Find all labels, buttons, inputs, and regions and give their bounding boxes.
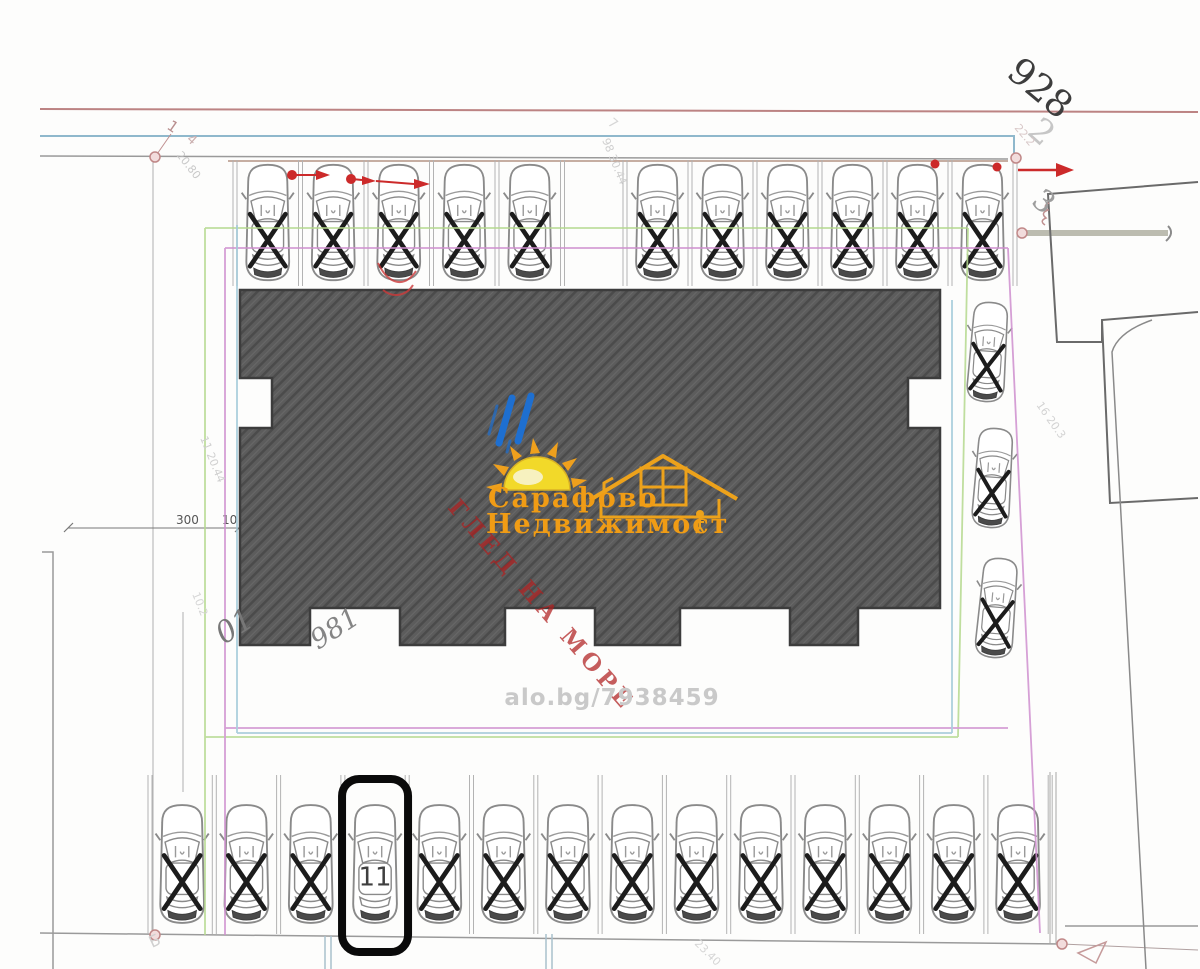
parking-row-right-column [962,301,1023,659]
parking-row-top-right [623,160,1017,286]
parking-spot-top_right-6 [956,165,1008,280]
brand-line2: Недвижимост [486,509,729,540]
parking-spot-bottom-7 [541,805,594,923]
neighbor-buildings [1042,182,1198,969]
parking-spot-right_column-3 [970,557,1023,660]
parking-spot-top_right-1 [631,165,683,280]
parking-spot-top_left-4 [438,165,490,280]
parking-spot-top_right-4 [826,165,878,280]
parking-spot-top_left-1 [242,165,294,280]
plot-number-928: 928 [999,49,1081,127]
parking-row-top-left [233,160,565,286]
parking-spot-top_right-5 [891,165,943,280]
dim-2080: 20.80 [174,149,204,182]
parking-row-bottom: 11 [148,775,1052,952]
dim-2340: 23.40 [692,937,723,968]
parking-spot-bottom-5 [413,805,466,923]
label-981: 981 [305,602,365,656]
listing-ref: alo.bg/7938459 [504,685,719,711]
parking-spot-bottom-12 [863,805,916,923]
mark-7: 7 [604,116,620,133]
arrow-right-icon [1056,163,1074,177]
main-building [240,290,940,645]
arrow-right-icon [414,179,430,189]
parking-spot-top_left-5 [504,165,556,280]
parking-spot-right_column-1 [962,301,1014,403]
arrow-right-icon [362,176,376,185]
leader-1: 1 [164,117,182,137]
parking-spot-right_column-2 [967,427,1019,529]
selected-spot-number: 11 [359,862,392,892]
label-b: Б [146,930,164,952]
dim-11-2044: 11 20.44 [197,434,227,484]
parking-spot-bottom-8 [606,805,659,923]
parking-spot-bottom-2 [220,805,273,923]
parking-spot-bottom-6 [477,805,530,923]
parking-spot-bottom-9 [670,805,723,923]
road-edge [1112,320,1152,969]
site-plan-canvas: 300 10 11 Сарафово [0,0,1200,969]
dim-102: 10.2 [189,590,210,618]
parking-spot-bottom-3 [284,805,337,923]
parking-spot-top_right-3 [761,165,813,280]
parking-spot-bottom-11 [799,805,852,923]
parking-spot-bottom-13 [927,805,980,923]
mark-3: 3 [1025,182,1062,221]
parking-spot-bottom-10 [734,805,787,923]
site-plan-svg: 300 10 11 Сарафово [0,0,1200,969]
dim-4: 4 [183,132,199,149]
parking-spot-bottom-1 [156,805,209,923]
parking-spot-top_right-2 [696,165,748,280]
dimension-line: 300 10 [64,513,244,532]
dim-label-300: 300 [176,513,199,527]
dim-16-203: 16 20.3 [1034,399,1069,441]
